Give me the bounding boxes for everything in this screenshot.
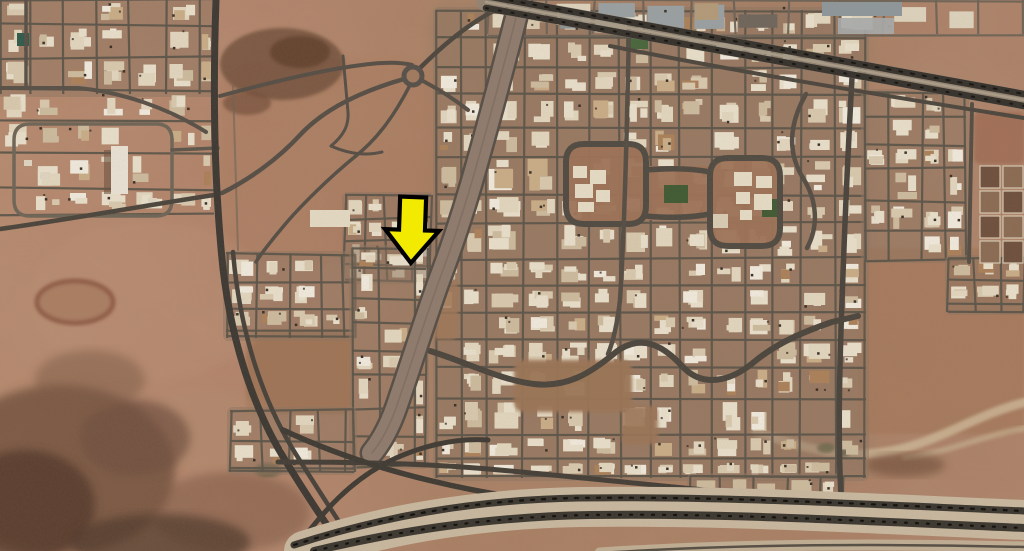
- grain-texture: [0, 0, 1024, 551]
- screenshot-root: [0, 0, 1024, 551]
- satellite-map: [0, 0, 1024, 551]
